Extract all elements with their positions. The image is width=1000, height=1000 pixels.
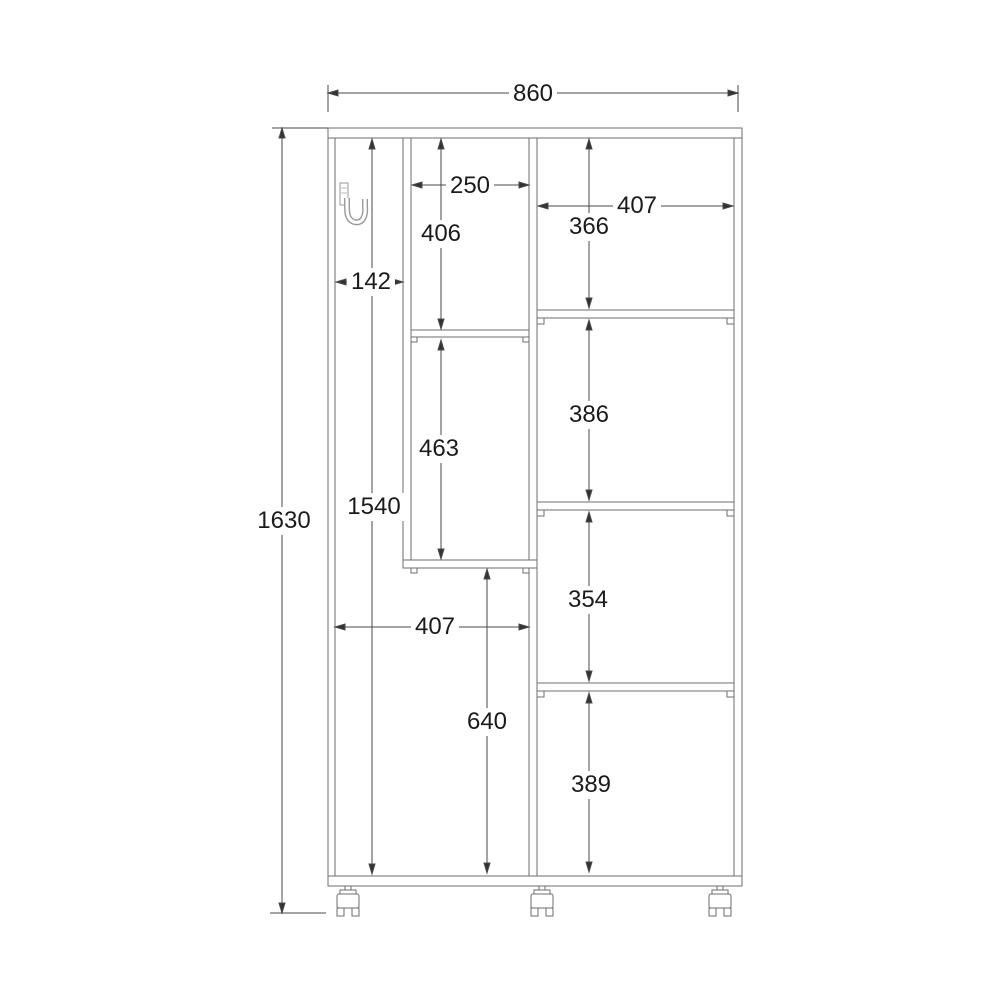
dim-label-right-shelf-3: 354 — [564, 586, 612, 614]
right-shelf-1 — [537, 310, 734, 318]
shelf-clip-icon — [537, 510, 544, 516]
dim-label-right-shelf-1: 366 — [565, 213, 613, 241]
caster-icon — [337, 886, 359, 916]
dim-label-lower-open-width: 407 — [411, 613, 459, 641]
shelf-clip-icon — [411, 568, 417, 573]
shelf-clip-icon — [411, 337, 417, 342]
dim-label-cubby-lower-height: 463 — [415, 435, 463, 463]
shelf-clip-icon — [727, 318, 734, 324]
inner-box-shelf — [411, 330, 529, 337]
shelf-clip-icon — [523, 568, 529, 573]
dim-label-right-section-width: 407 — [613, 192, 661, 220]
dim-label-overall-width: 860 — [509, 80, 557, 108]
hook-icon — [340, 183, 365, 222]
extension-lines — [270, 85, 738, 913]
shelf-clip-icon — [727, 510, 734, 516]
shelf-clip-icon — [523, 337, 529, 342]
dim-label-interior-height: 1540 — [343, 493, 404, 521]
cabinet-dimension-drawing — [0, 0, 1000, 1000]
dim-label-right-shelf-4: 389 — [567, 771, 615, 799]
left-side-panel — [328, 138, 335, 876]
dim-label-lower-open-height: 640 — [463, 708, 511, 736]
inner-box-bottom-panel — [403, 560, 537, 568]
technical-drawing-canvas: 860 1630 1540 142 250 406 463 407 640 40… — [0, 0, 1000, 1000]
dim-label-cubby-upper-height: 406 — [417, 220, 465, 248]
shelf-clip-icon — [537, 318, 544, 324]
dim-label-left-section-width: 142 — [347, 268, 395, 296]
caster-icon — [709, 886, 731, 916]
shelf-clip-icon — [727, 691, 734, 697]
center-divider-panel — [529, 138, 537, 876]
right-side-panel — [734, 138, 742, 876]
dim-label-overall-height: 1630 — [253, 507, 314, 535]
top-panel — [328, 128, 742, 138]
dim-label-right-shelf-2: 386 — [565, 401, 613, 429]
right-shelf-2 — [537, 502, 734, 510]
shelf-clip-icon — [537, 691, 544, 697]
dim-label-cubby-width: 250 — [446, 172, 494, 200]
bottom-panel — [328, 876, 742, 886]
right-shelf-3 — [537, 683, 734, 691]
caster-icon — [531, 886, 553, 916]
